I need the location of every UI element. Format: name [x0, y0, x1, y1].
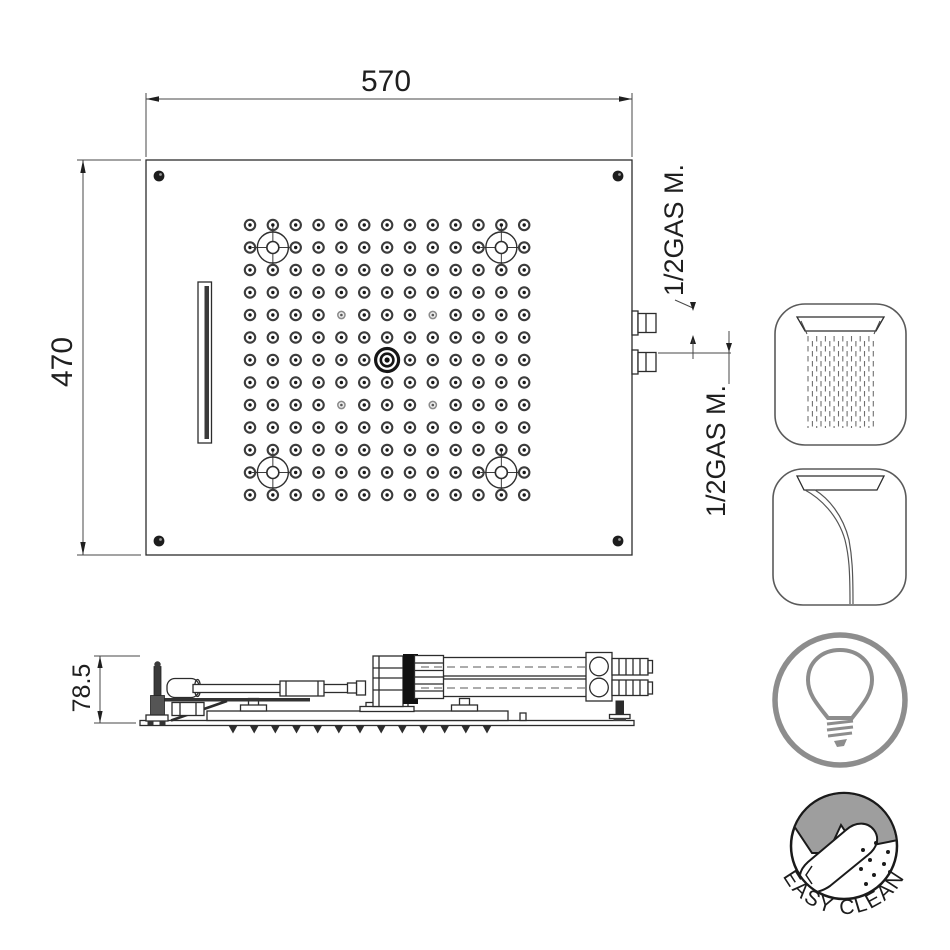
nozzle: [496, 332, 506, 342]
dimension-height: 470: [46, 160, 141, 555]
small-nozzle: [338, 401, 345, 408]
nozzle: [473, 422, 483, 432]
nozzle: [313, 377, 323, 387]
nozzle: [519, 445, 529, 455]
nozzle: [473, 332, 483, 342]
height-dimension-label: 470: [46, 337, 79, 387]
nozzle: [245, 445, 255, 455]
nozzle: [450, 377, 460, 387]
nozzle: [428, 355, 438, 365]
bulb-glass: [808, 650, 872, 718]
nozzle: [450, 467, 460, 477]
arrowhead-right: [619, 96, 632, 101]
nozzle: [313, 242, 323, 252]
nozzle: [428, 422, 438, 432]
nozzle: [450, 265, 460, 275]
technical-drawing-page: 570 470 1/2GAS M. 1/2GAS M.: [0, 0, 950, 950]
connection-label-1: 1/2GAS M.: [659, 164, 689, 296]
nozzle: [245, 332, 255, 342]
leader-lines: [658, 300, 732, 384]
nozzle: [519, 422, 529, 432]
nozzle: [268, 287, 278, 297]
screw-icon: [154, 536, 165, 547]
side-view: 78.5: [68, 653, 653, 734]
nozzle: [291, 355, 301, 365]
nozzle: [405, 310, 415, 320]
nozzle: [405, 355, 415, 365]
nozzle: [268, 422, 278, 432]
nozzle: [519, 355, 529, 365]
nozzle: [336, 467, 346, 477]
nozzle-tooth: [334, 726, 343, 734]
nozzle-tooth: [250, 726, 259, 734]
arrowhead-left: [146, 96, 159, 101]
nozzle: [519, 265, 529, 275]
connection-label-2: 1/2GAS M.: [701, 385, 731, 517]
small-nozzle: [429, 401, 436, 408]
dimension-width: 570: [146, 65, 632, 157]
nozzle: [428, 377, 438, 387]
light-bulb-icon: [775, 635, 905, 765]
nozzle: [245, 220, 255, 230]
nozzle: [359, 445, 369, 455]
nozzle: [268, 355, 278, 365]
nozzle: [450, 445, 460, 455]
nozzle: [496, 490, 506, 500]
nozzle: [382, 490, 392, 500]
nozzle: [359, 220, 369, 230]
nozzle: [428, 467, 438, 477]
nozzle: [405, 490, 415, 500]
waterfall-icon: [773, 469, 906, 605]
nozzle: [268, 400, 278, 410]
dimension-depth: 78.5: [68, 656, 140, 723]
nozzle: [473, 310, 483, 320]
nozzle: [245, 400, 255, 410]
nozzle: [336, 355, 346, 365]
nozzle: [450, 332, 460, 342]
width-dimension-label: 570: [361, 65, 411, 98]
screw-highlight: [618, 538, 621, 541]
panel-tab: [520, 713, 526, 721]
nozzle: [359, 467, 369, 477]
screw-highlight: [159, 173, 162, 176]
nozzle: [473, 355, 483, 365]
nozzle: [405, 467, 415, 477]
panel-profile: [207, 711, 508, 721]
nozzle: [268, 310, 278, 320]
nozzle: [291, 400, 301, 410]
nozzle: [313, 467, 323, 477]
nozzle: [313, 490, 323, 500]
small-nozzle: [429, 311, 436, 318]
nozzle: [405, 220, 415, 230]
nozzle: [382, 377, 392, 387]
nozzle: [291, 422, 301, 432]
nozzle: [428, 445, 438, 455]
nozzle: [382, 265, 392, 275]
nozzle: [291, 265, 301, 275]
nozzle-tooth: [377, 726, 386, 734]
nozzle: [313, 220, 323, 230]
nozzle: [359, 377, 369, 387]
nozzle: [428, 242, 438, 252]
depth-dimension-label: 78.5: [68, 664, 96, 713]
nozzle-teeth-row: [229, 726, 492, 734]
nozzle: [405, 445, 415, 455]
nozzle: [473, 265, 483, 275]
nozzle: [245, 265, 255, 275]
nozzle-tooth: [440, 726, 449, 734]
nozzle: [336, 332, 346, 342]
nozzle: [291, 220, 301, 230]
nozzle: [359, 422, 369, 432]
nozzle: [405, 287, 415, 297]
nozzle: [291, 287, 301, 297]
central-valve-block: [348, 654, 419, 712]
nozzle: [428, 220, 438, 230]
easy-clean-badge: EASY CLEAN: [778, 790, 909, 919]
nozzle: [382, 422, 392, 432]
nozzle: [313, 355, 323, 365]
nozzle: [519, 310, 529, 320]
nozzle: [450, 220, 460, 230]
nozzle: [291, 490, 301, 500]
nozzle-tooth: [398, 726, 407, 734]
nozzle: [313, 287, 323, 297]
nozzle: [336, 445, 346, 455]
nozzle: [519, 400, 529, 410]
nozzle: [519, 287, 529, 297]
nozzle: [473, 490, 483, 500]
nozzle: [496, 400, 506, 410]
nozzle: [473, 400, 483, 410]
nozzle: [313, 400, 323, 410]
nozzle: [268, 490, 278, 500]
nozzle: [336, 242, 346, 252]
nozzle: [382, 242, 392, 252]
nozzle: [245, 422, 255, 432]
nozzle: [359, 332, 369, 342]
screw-icon: [613, 536, 624, 547]
screw-icon: [154, 171, 165, 182]
nozzle: [268, 265, 278, 275]
nozzle: [313, 332, 323, 342]
nozzle: [382, 287, 392, 297]
nozzle: [496, 422, 506, 432]
nozzle: [450, 287, 460, 297]
nozzle: [245, 287, 255, 297]
rain-shower-icon: [775, 304, 906, 445]
nozzle: [405, 400, 415, 410]
nozzle-tooth: [229, 726, 238, 734]
nozzle: [496, 265, 506, 275]
nozzle: [519, 377, 529, 387]
nozzle: [336, 422, 346, 432]
nozzle: [382, 332, 392, 342]
nozzle: [473, 377, 483, 387]
nozzle-tooth: [271, 726, 280, 734]
nozzle-tooth: [356, 726, 365, 734]
nozzle-tooth: [483, 726, 492, 734]
supply-pipe: [193, 681, 348, 696]
nozzle: [313, 310, 323, 320]
right-end-fittings: [586, 653, 653, 721]
screw-highlight: [618, 173, 621, 176]
water-connection-2: [632, 350, 656, 374]
nozzle: [496, 310, 506, 320]
nozzle: [359, 265, 369, 275]
nozzle: [450, 242, 460, 252]
nozzle: [359, 242, 369, 252]
nozzle: [291, 467, 301, 477]
nozzle: [313, 445, 323, 455]
nozzle: [245, 377, 255, 387]
nozzle: [336, 377, 346, 387]
nozzle: [382, 467, 392, 477]
nozzle: [382, 310, 392, 320]
nozzle: [473, 445, 483, 455]
nozzle: [291, 445, 301, 455]
nozzle: [291, 377, 301, 387]
waterfall-slot: [198, 282, 212, 443]
nozzle: [473, 220, 483, 230]
nozzle: [245, 355, 255, 365]
arrowhead-down: [80, 542, 85, 555]
nozzle: [336, 287, 346, 297]
nozzle: [519, 220, 529, 230]
nozzle: [313, 265, 323, 275]
nozzle: [450, 422, 460, 432]
nozzle: [382, 400, 392, 410]
nozzle: [382, 220, 392, 230]
nozzle: [519, 332, 529, 342]
nozzle: [450, 400, 460, 410]
screw-icon: [613, 171, 624, 182]
nozzle: [405, 422, 415, 432]
nozzle-tooth: [313, 726, 322, 734]
nozzle: [336, 490, 346, 500]
nozzle: [359, 287, 369, 297]
nozzle: [450, 310, 460, 320]
nozzle: [450, 355, 460, 365]
bulb-base: [834, 739, 847, 747]
top-view: [146, 160, 656, 555]
nozzle-tooth: [292, 726, 301, 734]
nozzle: [359, 400, 369, 410]
nozzle: [313, 422, 323, 432]
nozzle: [245, 490, 255, 500]
nozzle-tooth: [461, 726, 470, 734]
nozzle: [291, 332, 301, 342]
nozzle: [428, 265, 438, 275]
nozzle: [359, 490, 369, 500]
nozzle: [450, 490, 460, 500]
arrowhead-up: [80, 160, 85, 173]
nozzle: [268, 332, 278, 342]
nozzle: [473, 287, 483, 297]
nozzle: [405, 332, 415, 342]
nozzle: [382, 445, 392, 455]
nozzle: [336, 265, 346, 275]
nozzle: [428, 332, 438, 342]
nozzle: [519, 242, 529, 252]
nozzle: [268, 377, 278, 387]
nozzle: [496, 377, 506, 387]
nozzle: [428, 287, 438, 297]
nozzle: [359, 355, 369, 365]
nozzle: [359, 310, 369, 320]
connection-labels: 1/2GAS M. 1/2GAS M.: [658, 164, 732, 517]
nozzle: [291, 310, 301, 320]
mounting-bar: [140, 721, 634, 726]
nozzle: [496, 355, 506, 365]
technical-drawing-canvas: 570 470 1/2GAS M. 1/2GAS M.: [0, 0, 950, 950]
screw-highlight: [159, 538, 162, 541]
small-nozzle: [338, 311, 345, 318]
nozzle: [405, 377, 415, 387]
nozzle: [496, 287, 506, 297]
nozzle: [405, 242, 415, 252]
nozzle: [519, 467, 529, 477]
nozzle: [405, 265, 415, 275]
water-connection-1: [632, 311, 656, 335]
nozzle: [519, 490, 529, 500]
nozzle: [291, 242, 301, 252]
nozzle: [428, 490, 438, 500]
nozzle: [245, 310, 255, 320]
nozzle-tooth: [419, 726, 428, 734]
nozzle: [336, 220, 346, 230]
